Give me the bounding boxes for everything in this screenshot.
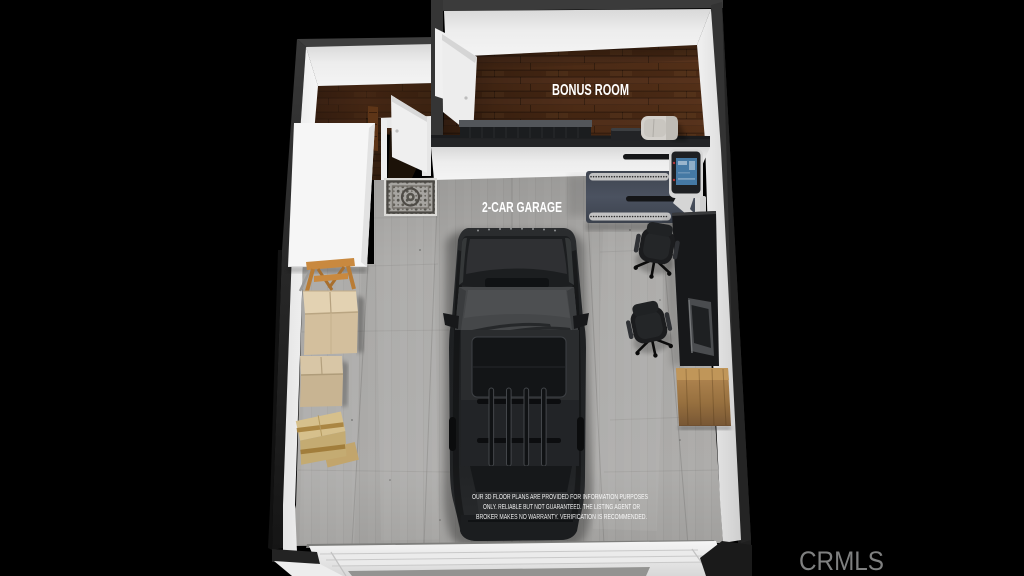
svg-text:BONUS ROOM: BONUS ROOM [552,82,629,99]
svg-text:ONLY. RELIABLE BUT NOT GUARANT: ONLY. RELIABLE BUT NOT GUARANTEED. THE L… [483,502,640,511]
svg-text:CRMLS: CRMLS [799,546,884,576]
svg-text:OUR 3D FLOOR PLANS ARE PROVIDE: OUR 3D FLOOR PLANS ARE PROVIDED FOR INFO… [472,492,648,501]
svg-text:2-CAR GARAGE: 2-CAR GARAGE [482,199,562,216]
svg-text:BROKER MAKES NO WARRANTY. VERI: BROKER MAKES NO WARRANTY. VERIFICATION I… [476,512,647,521]
